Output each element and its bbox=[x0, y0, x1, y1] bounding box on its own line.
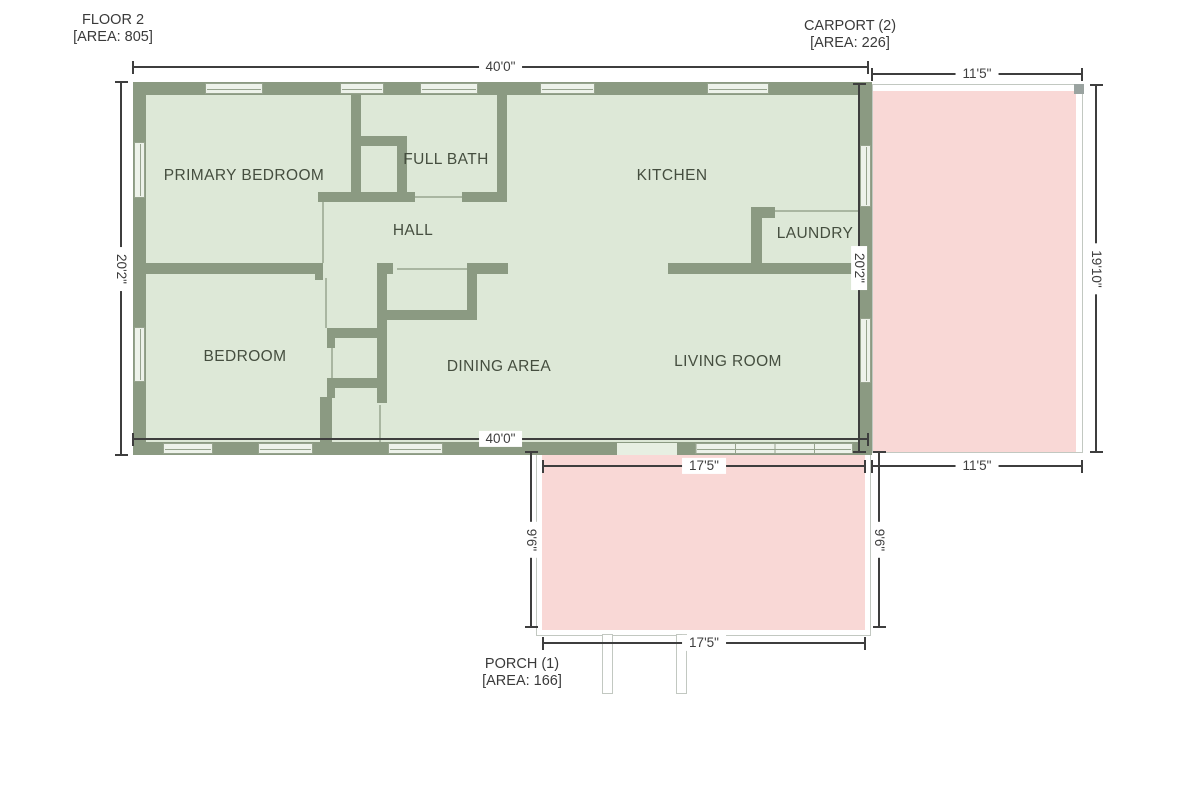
window bbox=[258, 443, 313, 454]
porch-door-opening bbox=[617, 443, 677, 455]
wall-segment bbox=[387, 310, 477, 320]
porch-area bbox=[542, 452, 865, 630]
dimension-house-height-right: 20'2" bbox=[858, 84, 860, 452]
wall-segment-closet bbox=[327, 328, 387, 338]
wall-segment bbox=[467, 263, 508, 274]
door-opening-line bbox=[331, 348, 333, 378]
dimension-label: 9'6" bbox=[523, 521, 539, 557]
room-label-full-bath: FULL BATH bbox=[403, 151, 488, 169]
window bbox=[860, 145, 871, 207]
carport-title: CARPORT (2) [AREA: 226] bbox=[804, 18, 896, 52]
room-label-kitchen: KITCHEN bbox=[637, 167, 708, 185]
dimension-label: 9'6" bbox=[871, 521, 887, 557]
carport-title-line1: CARPORT (2) bbox=[804, 18, 896, 35]
dimension-porch-width-bottom: 17'5" bbox=[543, 642, 865, 644]
dimension-label: 20'2" bbox=[851, 246, 867, 290]
dimension-label: 11'5" bbox=[956, 458, 999, 474]
window bbox=[420, 83, 478, 94]
window bbox=[134, 142, 145, 198]
floor-title-line1: FLOOR 2 bbox=[73, 12, 153, 29]
wall-segment bbox=[318, 192, 415, 202]
carport-corner-post bbox=[1074, 84, 1084, 94]
wall-segment bbox=[351, 95, 361, 202]
wall-segment-living-kitchen bbox=[668, 263, 860, 274]
wall-segment bbox=[320, 397, 332, 442]
porch-title: PORCH (1) [AREA: 166] bbox=[482, 656, 562, 690]
dimension-porch-height-right: 9'6" bbox=[878, 452, 880, 627]
door-opening-line bbox=[397, 268, 467, 270]
window bbox=[340, 83, 384, 94]
carport-title-line2: [AREA: 226] bbox=[804, 35, 896, 52]
floor-title: FLOOR 2 [AREA: 805] bbox=[73, 12, 153, 46]
dimension-label: 17'5" bbox=[682, 635, 726, 651]
window bbox=[707, 83, 769, 94]
dimension-label: 20'2" bbox=[113, 247, 129, 291]
wall-segment bbox=[327, 338, 335, 348]
window bbox=[388, 443, 443, 454]
dimension-house-height-left: 20'2" bbox=[120, 82, 122, 455]
room-label-dining-area: DINING AREA bbox=[447, 358, 551, 376]
window bbox=[860, 318, 871, 383]
dimension-house-width-top: 40'0" bbox=[133, 66, 868, 68]
wall-segment bbox=[361, 136, 407, 146]
window bbox=[163, 443, 213, 454]
window-bank bbox=[695, 443, 853, 454]
dimension-label: 19'10" bbox=[1088, 243, 1104, 294]
wall-segment bbox=[315, 274, 323, 280]
room-label-primary-bedroom: PRIMARY BEDROOM bbox=[164, 167, 324, 185]
wall-segment-closet bbox=[327, 378, 387, 388]
door-opening-line bbox=[775, 210, 860, 212]
carport-area bbox=[873, 91, 1076, 452]
dimension-label: 17'5" bbox=[682, 458, 726, 474]
dimension-carport-height-right: 19'10" bbox=[1095, 85, 1097, 452]
porch-title-line2: [AREA: 166] bbox=[482, 673, 562, 690]
window bbox=[205, 83, 263, 94]
wall-segment bbox=[497, 95, 507, 202]
dimension-carport-width-bottom: 11'5" bbox=[872, 465, 1082, 467]
door-opening-line bbox=[415, 196, 462, 198]
floor-title-line2: [AREA: 805] bbox=[73, 29, 153, 46]
window bbox=[134, 327, 145, 382]
dimension-label: 40'0" bbox=[479, 59, 523, 75]
door-opening-line bbox=[322, 202, 324, 263]
dimension-porch-height-left: 9'6" bbox=[530, 452, 532, 627]
wall-segment bbox=[751, 207, 775, 218]
porch-title-line1: PORCH (1) bbox=[482, 656, 562, 673]
wall-segment-mid bbox=[133, 263, 323, 274]
door-opening-line bbox=[379, 405, 381, 442]
dimension-carport-width-top: 11'5" bbox=[872, 73, 1082, 75]
room-label-living-room: LIVING ROOM bbox=[674, 353, 782, 371]
dimension-porch-width-top: 17'5" bbox=[543, 465, 865, 467]
room-label-bedroom: BEDROOM bbox=[204, 348, 287, 366]
floorplan-canvas: PRIMARY BEDROOM FULL BATH KITCHEN HALL L… bbox=[0, 0, 1200, 797]
room-label-hall: HALL bbox=[393, 222, 433, 240]
dimension-house-width-bottom: 40'0" bbox=[133, 438, 868, 440]
dimension-label: 11'5" bbox=[956, 66, 999, 82]
dimension-label: 40'0" bbox=[479, 431, 523, 447]
room-label-laundry: LAUNDRY bbox=[777, 225, 854, 243]
door-opening-line bbox=[325, 278, 327, 328]
window bbox=[540, 83, 595, 94]
